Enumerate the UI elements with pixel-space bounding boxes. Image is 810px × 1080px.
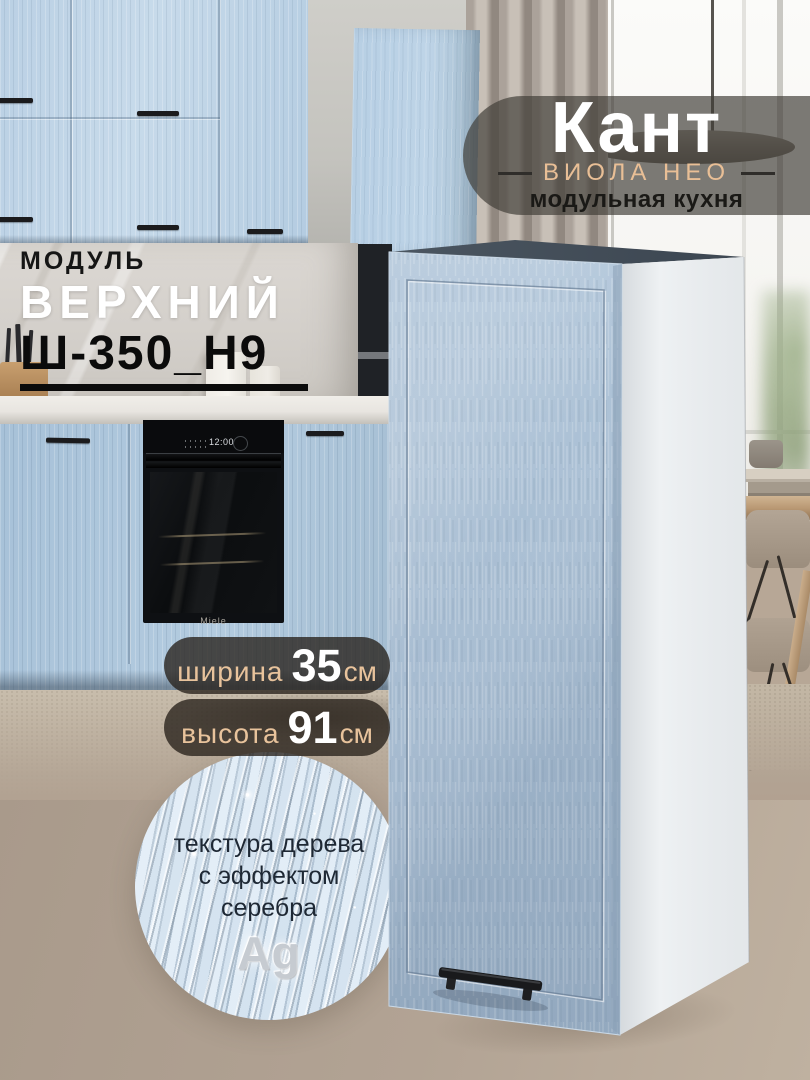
book-stack [748, 482, 810, 496]
cabinet-door-sheen [389, 252, 622, 1035]
cabinet-handle [46, 438, 90, 444]
texture-feature-text: текстура дерева с эффектом серебра Ag [135, 752, 403, 1020]
brand-title: Кант [551, 99, 723, 158]
cabinet-side-shading [620, 257, 749, 1035]
feature-line: серебра [221, 892, 317, 924]
height-unit: см [340, 718, 373, 749]
texture-feature-circle: текстура дерева с эффектом серебра Ag [135, 752, 403, 1020]
cabinet-handle [247, 229, 283, 234]
module-underline [20, 384, 308, 391]
upper-cabinets [0, 0, 308, 245]
oven-control-panel: 12:00 [143, 420, 284, 453]
tall-cabinet [350, 28, 480, 254]
height-pill: высота91см [164, 699, 390, 756]
brand-series: ВИОЛА НЕО [543, 161, 730, 185]
silver-symbol: Ag [237, 926, 300, 980]
height-label: высота [181, 718, 279, 749]
cabinet-handle [137, 111, 179, 116]
oven-clock: 12:00 [209, 437, 234, 447]
module-name: ВЕРХНИЙ [20, 276, 308, 329]
cabinet-seam [218, 0, 220, 245]
width-pill: ширина35см [164, 637, 390, 694]
cabinet-seam [0, 117, 220, 119]
cabinet-seam [128, 424, 130, 664]
width-value: 35 [292, 640, 342, 691]
oven-rack-reflection [160, 560, 264, 566]
oven-door-glass: Miele [150, 472, 277, 613]
cabinet-handle [0, 217, 33, 222]
cabinet-render [385, 230, 755, 1045]
module-label: МОДУЛЬ [20, 248, 308, 276]
module-title-block: МОДУЛЬ ВЕРХНИЙ Ш-350_Н9 [20, 248, 308, 391]
dash-line [741, 172, 775, 175]
product-card: 12:00 Miele текстура дерева с эффектом с… [0, 0, 810, 1080]
oven-brand-logo: Miele [150, 616, 277, 626]
brand-badge: Кант ВИОЛА НЕО модульная кухня [463, 96, 810, 215]
module-code: Ш-350_Н9 [20, 328, 308, 381]
oven-handle [146, 453, 281, 468]
dimension-pills: ширина35см высота91см [164, 637, 390, 756]
feature-line: текстура дерева [174, 828, 365, 860]
width-label: ширина [177, 656, 283, 687]
oven-rack-reflection [158, 532, 266, 538]
cabinet-handle [306, 431, 344, 436]
cabinet-seam [70, 0, 72, 245]
width-unit: см [344, 656, 377, 687]
height-value: 91 [288, 702, 338, 753]
oven-dial [233, 436, 248, 451]
feature-line: с эффектом [199, 860, 340, 892]
brand-series-row: ВИОЛА НЕО [498, 161, 775, 185]
dash-line [498, 172, 532, 175]
oven-icon-row [183, 438, 209, 450]
brand-tagline: модульная кухня [530, 188, 744, 212]
cabinet-handle [0, 98, 33, 103]
built-in-oven: 12:00 Miele [143, 420, 284, 623]
cabinet-handle [137, 225, 179, 230]
